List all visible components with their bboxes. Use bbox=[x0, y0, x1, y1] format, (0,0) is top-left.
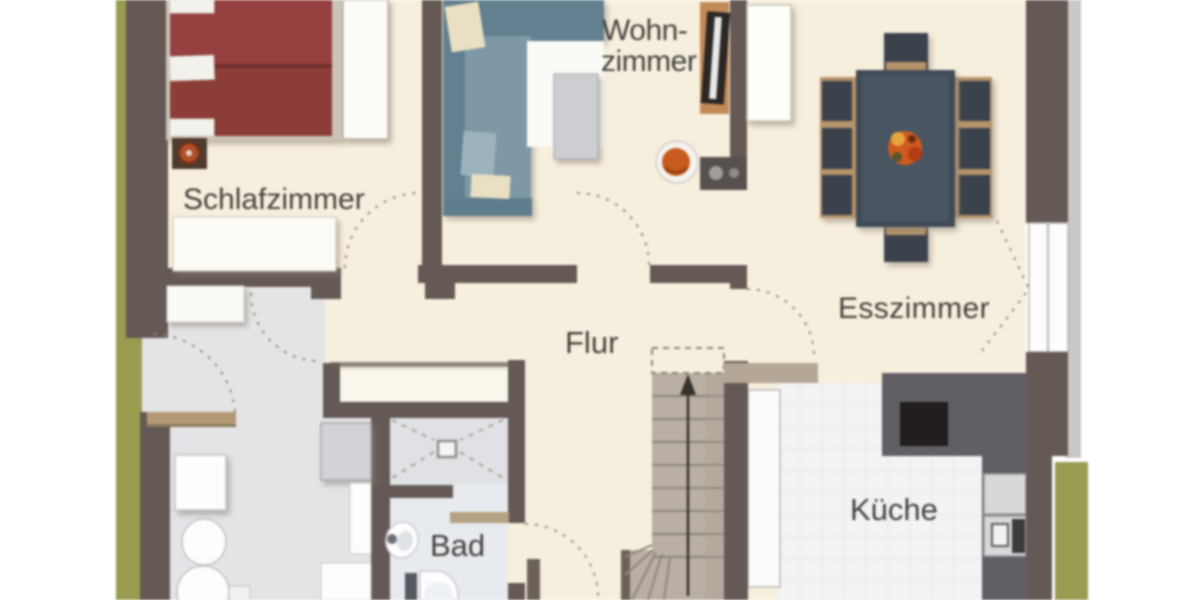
svg-text:Küche: Küche bbox=[850, 492, 938, 527]
svg-text:Flur: Flur bbox=[565, 325, 618, 360]
svg-text:Esszimmer: Esszimmer bbox=[838, 292, 990, 325]
svg-text:zimmer: zimmer bbox=[601, 45, 697, 78]
svg-text:Bad: Bad bbox=[430, 528, 485, 563]
svg-text:Schlafzimmer: Schlafzimmer bbox=[183, 183, 365, 216]
svg-text:Wohn-: Wohn- bbox=[602, 14, 687, 47]
